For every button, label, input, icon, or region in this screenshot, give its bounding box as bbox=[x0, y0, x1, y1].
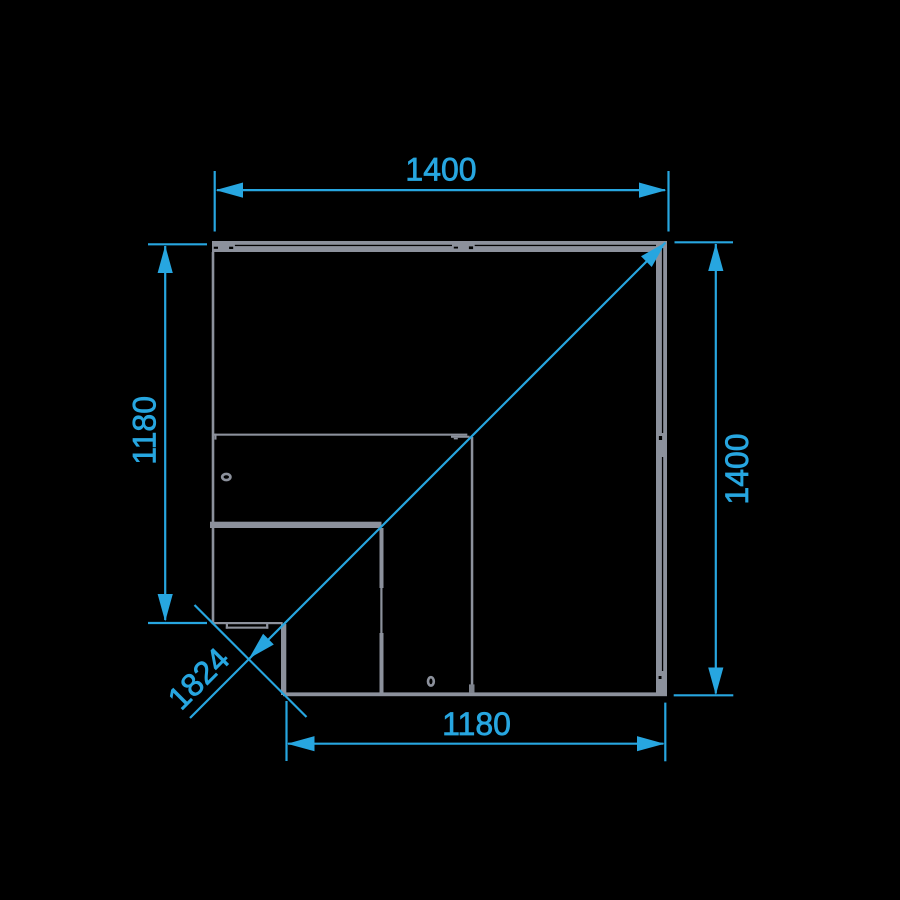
svg-text:1180: 1180 bbox=[127, 396, 163, 465]
svg-text:1400: 1400 bbox=[405, 152, 476, 188]
svg-text:1400: 1400 bbox=[719, 433, 755, 504]
svg-text:1180: 1180 bbox=[442, 706, 511, 742]
